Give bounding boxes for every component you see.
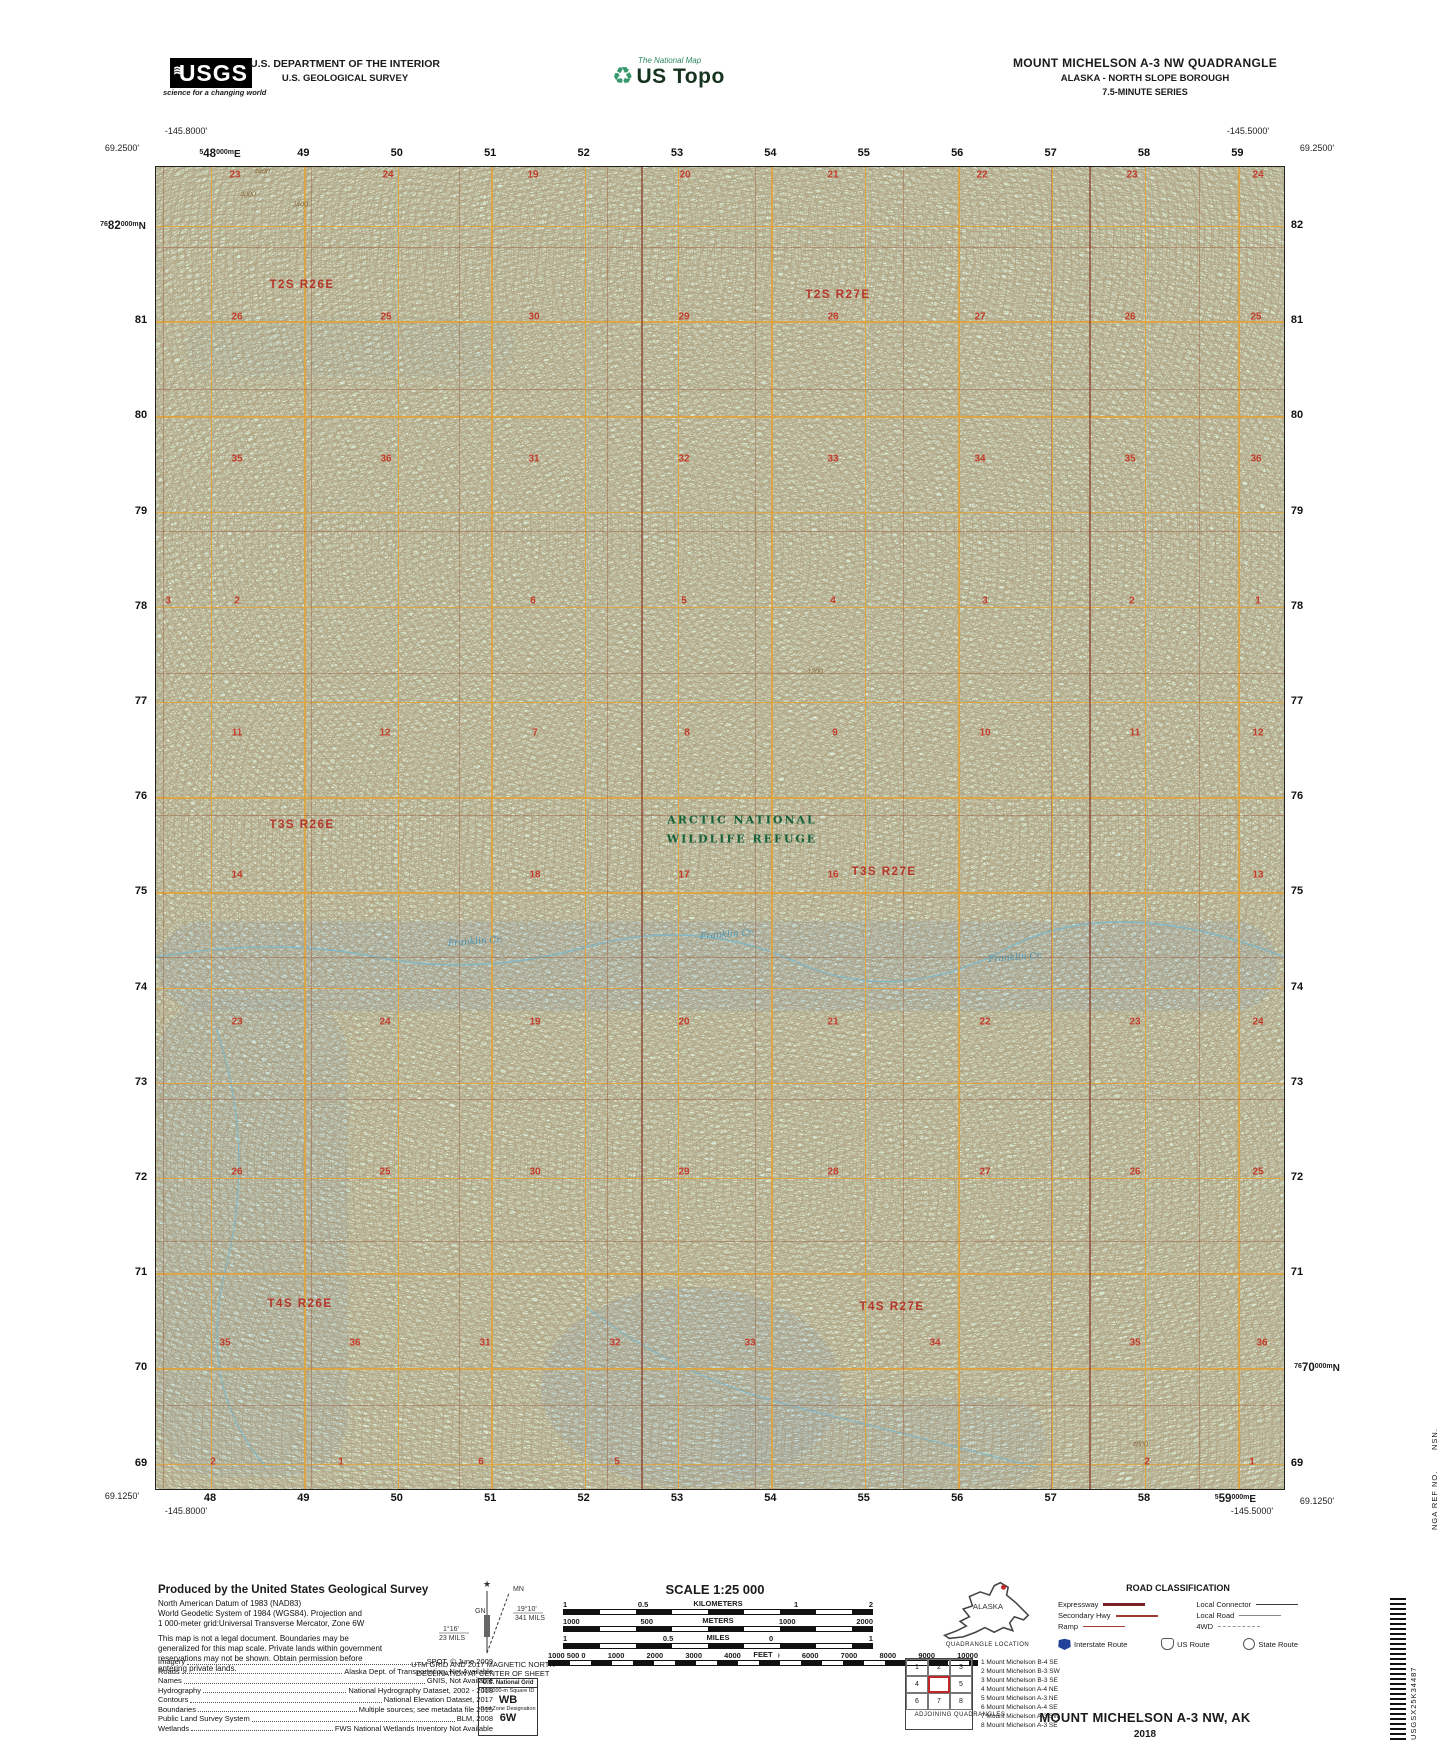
usng-title: U.S. National Grid xyxy=(479,1679,537,1688)
credit-label: Roads xyxy=(158,1667,180,1677)
utm-northing-line-75 xyxy=(156,892,1284,893)
road-line-sample xyxy=(1116,1615,1158,1617)
northing-right-76: 76 xyxy=(1291,790,1303,802)
utm-northing-line-78 xyxy=(156,607,1284,608)
utm-northing-line-79 xyxy=(156,512,1284,513)
barcode-code: USGSX25K34487 xyxy=(1409,1600,1418,1740)
topo-map-body xyxy=(155,166,1285,1490)
utm-easting-line-58 xyxy=(1145,167,1146,1489)
declination-caption: UTM GRID AND 2017 MAGNETIC NORTH DECLINA… xyxy=(408,1660,558,1678)
northing-left-72: 72 xyxy=(135,1171,147,1183)
credit-row-7: WetlandsFWS National Wetlands Inventory … xyxy=(158,1724,493,1734)
easting-bottom-48: 48 xyxy=(204,1492,216,1504)
scale-tick-label: 2 xyxy=(869,1600,873,1609)
northing-right-81: 81 xyxy=(1291,314,1303,326)
corner-bottom-left-lon: -145.8000' xyxy=(165,1506,207,1516)
scale-tick-label: 1 xyxy=(869,1634,873,1643)
credit-value: National Hydrography Dataset, 2002 - 201… xyxy=(348,1686,493,1696)
scale-bar-rule xyxy=(563,1609,873,1615)
adjoining-cell-0: 1 xyxy=(906,1659,928,1676)
credit-value: National Elevation Dataset, 2017 xyxy=(384,1695,493,1705)
department-heading: U.S. DEPARTMENT OF THE INTERIOR U.S. GEO… xyxy=(240,58,450,84)
road-row-r-1: Local Road xyxy=(1196,1610,1298,1621)
scale-tick-label: 0.5 xyxy=(638,1600,648,1609)
national-map-tagline: The National Map xyxy=(638,56,732,65)
shield-label: US Route xyxy=(1177,1640,1210,1649)
northing-label-first-part: 000m xyxy=(121,221,139,228)
corner-top-left-lon: -145.8000' xyxy=(165,126,207,136)
scale-tick-label: 7000 xyxy=(841,1651,858,1660)
credit-leader xyxy=(184,1676,425,1684)
easting-bottom-57: 57 xyxy=(1044,1492,1056,1504)
northing-label-70-part: N xyxy=(1333,1363,1340,1374)
svg-text:MN: MN xyxy=(513,1586,524,1593)
sheet-name: MOUNT MICHELSON A-3 NW, AK xyxy=(1000,1710,1290,1725)
northing-left-79: 79 xyxy=(135,505,147,517)
road-classification: ROAD CLASSIFICATION ExpresswaySecondary … xyxy=(1058,1583,1298,1650)
quadrangle-series: 7.5-MINUTE SERIES xyxy=(1000,87,1290,97)
utm-northing-line-76 xyxy=(156,797,1284,798)
road-label: Expressway xyxy=(1058,1600,1098,1609)
adjoining-cell-4 xyxy=(928,1676,950,1693)
scale-tick-label: 6000 xyxy=(802,1651,819,1660)
adjoining-quad-name-2: 3 Mount Michelson B-3 SE xyxy=(981,1676,1060,1685)
scale-tick-label: 1 xyxy=(794,1600,798,1609)
northing-left-81: 81 xyxy=(135,314,147,326)
utm-easting-line-48 xyxy=(211,167,212,1489)
utm-easting-line-55 xyxy=(865,167,866,1489)
quadrangle-location: ALASKA QUADRANGLE LOCATION xyxy=(925,1578,1050,1648)
easting-bottom-54: 54 xyxy=(764,1492,776,1504)
easting-bottom-50: 50 xyxy=(391,1492,403,1504)
usng-zone: 6W xyxy=(479,1712,537,1724)
credit-label: Imagery xyxy=(158,1657,185,1667)
northing-left-73: 73 xyxy=(135,1076,147,1088)
easting-top-50: 50 xyxy=(391,147,403,159)
credit-leader xyxy=(190,1695,381,1703)
utm-easting-line-50 xyxy=(398,167,399,1489)
northing-label-first-part: N xyxy=(139,221,146,232)
northing-right-79: 79 xyxy=(1291,505,1303,517)
credit-label: Public Land Survey System xyxy=(158,1714,250,1724)
utm-northing-line-69 xyxy=(156,1464,1284,1465)
northing-left-70: 70 xyxy=(135,1361,147,1373)
township-line-v0 xyxy=(641,167,643,1489)
adjoining-grid: 12345678 xyxy=(905,1658,973,1730)
route-shields: Interstate RouteUS RouteState Route xyxy=(1058,1638,1298,1650)
adjoining-quad-name-0: 1 Mount Michelson B-4 SE xyxy=(981,1658,1060,1667)
adjoining-cell-7: 7 xyxy=(928,1693,950,1710)
section-line-v3 xyxy=(607,167,608,1489)
road-label: 4WD xyxy=(1196,1622,1213,1631)
scale-bar-rule xyxy=(563,1643,873,1649)
scale-tick-label: 2000 xyxy=(647,1651,664,1660)
scale-tick-label: 1000 500 0 xyxy=(548,1651,586,1660)
section-line-v4 xyxy=(755,167,756,1489)
road-label: Secondary Hwy xyxy=(1058,1611,1111,1620)
credit-row-5: BoundariesMultiple sources; see metadata… xyxy=(158,1705,493,1715)
utm-northing-line-81 xyxy=(156,321,1284,322)
road-line-sample xyxy=(1239,1615,1281,1616)
northing-label-70-part: 000m xyxy=(1315,1363,1333,1370)
scale-unit-label: FEET xyxy=(747,1650,778,1659)
scale-tick-label: 2000 xyxy=(856,1617,873,1626)
us-shield-icon xyxy=(1161,1638,1174,1650)
adjoining-quad-name-3: 4 Mount Michelson A-4 NE xyxy=(981,1685,1060,1694)
northing-right-78: 78 xyxy=(1291,600,1303,612)
northing-label-first-part: 82 xyxy=(108,220,121,232)
easting-top-49: 49 xyxy=(297,147,309,159)
northing-right-73: 73 xyxy=(1291,1076,1303,1088)
easting-top-56: 56 xyxy=(951,147,963,159)
quadrangle-title-block: MOUNT MICHELSON A-3 NW QUADRANGLE ALASKA… xyxy=(1000,56,1290,97)
easting-label-last-part: 59 xyxy=(1219,1493,1232,1505)
road-row-r-0: Local Connector xyxy=(1196,1599,1298,1610)
utm-easting-line-51 xyxy=(491,167,492,1489)
credit-label: Names xyxy=(158,1676,182,1686)
barcode xyxy=(1390,1598,1406,1740)
scale-bar-meters: 1000500010002000METERS xyxy=(563,1617,873,1632)
northing-right-72: 72 xyxy=(1291,1171,1303,1183)
svg-text:341 MILS: 341 MILS xyxy=(515,1615,545,1622)
quadloc-caption: QUADRANGLE LOCATION xyxy=(925,1642,1050,1648)
scale-tick-label: 3000 xyxy=(685,1651,702,1660)
scale-unit-label: MILES xyxy=(701,1633,736,1642)
section-line-h0 xyxy=(156,247,1284,248)
utm-northing-line-74 xyxy=(156,988,1284,989)
section-line-v2 xyxy=(459,167,460,1489)
credit-value: Multiple sources; see metadata file 2015 xyxy=(359,1705,493,1715)
northing-label-70: 7670000mN xyxy=(1294,1358,1340,1376)
scale-tick-label: 1 xyxy=(563,1634,567,1643)
corner-top-right-lon: -145.5000' xyxy=(1227,126,1269,136)
declination-caption-line1: UTM GRID AND 2017 MAGNETIC NORTH xyxy=(408,1660,558,1669)
northing-right-75: 75 xyxy=(1291,885,1303,897)
usng-square-id: WB xyxy=(479,1694,537,1706)
easting-bottom-56: 56 xyxy=(951,1492,963,1504)
shield-item-2: State Route xyxy=(1243,1638,1298,1650)
easting-bottom-58: 58 xyxy=(1138,1492,1150,1504)
adjoining-cell-8: 8 xyxy=(950,1693,972,1710)
shield-label: State Route xyxy=(1258,1640,1298,1649)
easting-top-51: 51 xyxy=(484,147,496,159)
adjoining-cell-2: 3 xyxy=(950,1659,972,1676)
svg-text:1°16': 1°16' xyxy=(443,1625,459,1633)
northing-right-74: 74 xyxy=(1291,981,1303,993)
section-line-v6 xyxy=(1051,167,1052,1489)
declination-diagram: ★ MN GN 19°10' 341 MILS 1°16' 23 MILS xyxy=(425,1575,555,1665)
utm-easting-line-52 xyxy=(585,167,586,1489)
road-label: Ramp xyxy=(1058,1622,1078,1631)
declination-caption-line2: DECLINATION AT CENTER OF SHEET xyxy=(408,1669,558,1678)
easting-label-first: 548000mE xyxy=(199,144,240,162)
credit-leader xyxy=(187,1657,425,1665)
usng-box: U.S. National Grid 100,000-m Square ID W… xyxy=(478,1678,538,1736)
scale-tick-label: 8000 xyxy=(879,1651,896,1660)
shield-item-0: Interstate Route xyxy=(1058,1638,1127,1650)
scale-tick-label: 4000 xyxy=(724,1651,741,1660)
utm-easting-line-49 xyxy=(304,167,305,1489)
adjoining-quad-name-4: 5 Mount Michelson A-3 NE xyxy=(981,1694,1060,1703)
section-line-v7 xyxy=(1199,167,1200,1489)
easting-label-first-part: E xyxy=(234,149,241,160)
easting-label-last: 559000mE xyxy=(1215,1489,1256,1507)
credit-leader xyxy=(182,1667,343,1675)
northing-right-82: 82 xyxy=(1291,219,1303,231)
utm-northing-line-77 xyxy=(156,702,1284,703)
scale-tick-label: 1000 xyxy=(608,1651,625,1660)
svg-text:★: ★ xyxy=(483,1579,491,1589)
scale-bar-rule xyxy=(563,1626,873,1632)
sheet-title-block: MOUNT MICHELSON A-3 NW, AK 2018 xyxy=(1000,1710,1290,1740)
northing-right-69: 69 xyxy=(1291,1457,1303,1469)
corner-top-right-lat: 69.2500' xyxy=(1300,143,1334,153)
road-line-sample xyxy=(1103,1603,1145,1606)
scale-unit-label: METERS xyxy=(696,1616,739,1625)
svg-text:ALASKA: ALASKA xyxy=(972,1602,1003,1611)
easting-top-52: 52 xyxy=(577,147,589,159)
ustopo-logo: The National Map ♻ US Topo xyxy=(612,56,732,89)
scale-title: SCALE 1:25 000 xyxy=(545,1582,885,1597)
scale-tick-label: 500 xyxy=(641,1617,654,1626)
easting-bottom-53: 53 xyxy=(671,1492,683,1504)
easting-top-59: 59 xyxy=(1231,147,1243,159)
road-rows-left: ExpresswaySecondary HwyRamp xyxy=(1058,1599,1158,1632)
road-rows-right: Local ConnectorLocal Road4WD xyxy=(1196,1599,1298,1632)
interstate-shield-icon xyxy=(1058,1638,1071,1650)
credit-row-3: HydrographyNational Hydrography Dataset,… xyxy=(158,1686,493,1696)
northing-left-75: 75 xyxy=(135,885,147,897)
scale-bar-miles: 10.501MILES xyxy=(563,1634,873,1649)
road-classification-title: ROAD CLASSIFICATION xyxy=(1058,1583,1298,1593)
northing-left-77: 77 xyxy=(135,695,147,707)
adjoining-cell-3: 4 xyxy=(906,1676,928,1693)
section-line-h1 xyxy=(156,389,1284,390)
credit-value: FWS National Wetlands Inventory Not Avai… xyxy=(335,1724,493,1734)
road-row-l-1: Secondary Hwy xyxy=(1058,1610,1158,1621)
section-line-h3 xyxy=(156,673,1284,674)
adjoining-cell-1: 2 xyxy=(928,1659,950,1676)
svg-text:23 MILS: 23 MILS xyxy=(439,1635,465,1642)
utm-northing-line-71 xyxy=(156,1273,1284,1274)
corner-bottom-right-lat: 69.1250' xyxy=(1300,1496,1334,1506)
usgs-waves-icon: ≋ xyxy=(173,62,183,79)
state-shield-icon xyxy=(1243,1638,1255,1650)
road-row-l-2: Ramp xyxy=(1058,1621,1158,1632)
easting-label-first-part: 000m xyxy=(216,149,234,156)
section-line-h4 xyxy=(156,815,1284,816)
credit-row-6: Public Land Survey SystemBLM, 2008 xyxy=(158,1714,493,1724)
utm-northing-line-82 xyxy=(156,226,1284,227)
easting-bottom-55: 55 xyxy=(858,1492,870,1504)
easting-bottom-49: 49 xyxy=(297,1492,309,1504)
national-map-icon: ♻ xyxy=(612,65,634,89)
northing-label-first-part: 76 xyxy=(100,221,108,228)
svg-text:GN: GN xyxy=(475,1608,486,1615)
adjoining-cell-5: 5 xyxy=(950,1676,972,1693)
easting-top-55: 55 xyxy=(858,147,870,159)
northing-right-80: 80 xyxy=(1291,409,1303,421)
section-line-v5 xyxy=(903,167,904,1489)
road-label: Local Connector xyxy=(1196,1600,1251,1609)
credit-row-4: ContoursNational Elevation Dataset, 2017 xyxy=(158,1695,493,1705)
scale-tick-label: 0.5 xyxy=(663,1634,673,1643)
easting-top-58: 58 xyxy=(1138,147,1150,159)
section-line-h5 xyxy=(156,957,1284,958)
quadrangle-state: ALASKA - NORTH SLOPE BOROUGH xyxy=(1000,73,1290,84)
scale-tick-label: 1 xyxy=(563,1600,567,1609)
utm-northing-line-80 xyxy=(156,416,1284,417)
easting-bottom-51: 51 xyxy=(484,1492,496,1504)
svg-text:19°10': 19°10' xyxy=(517,1605,537,1613)
corner-bottom-left-lat: 69.1250' xyxy=(105,1491,139,1501)
northing-label-first: 7682000mN xyxy=(100,216,146,234)
easting-label-first-part: 48 xyxy=(203,148,216,160)
road-row-l-0: Expressway xyxy=(1058,1599,1158,1610)
northing-label-70-part: 76 xyxy=(1294,1363,1302,1370)
northing-right-77: 77 xyxy=(1291,695,1303,707)
northing-right-71: 71 xyxy=(1291,1266,1303,1278)
easting-label-first-part: 5 xyxy=(199,149,203,156)
utm-northing-line-72 xyxy=(156,1178,1284,1179)
easting-bottom-52: 52 xyxy=(577,1492,589,1504)
easting-top-54: 54 xyxy=(764,147,776,159)
quadrangle-name: MOUNT MICHELSON A-3 NW QUADRANGLE xyxy=(1000,56,1290,70)
section-line-h8 xyxy=(156,1405,1284,1406)
northing-label-70-part: 70 xyxy=(1302,1362,1315,1374)
easting-top-57: 57 xyxy=(1044,147,1056,159)
easting-label-last-part: E xyxy=(1249,1494,1256,1505)
section-line-h2 xyxy=(156,531,1284,532)
scale-tick-label: 1000 xyxy=(563,1617,580,1626)
section-line-v0 xyxy=(163,167,164,1489)
nga-ref-label: NGA REF NO. xyxy=(1430,1440,1439,1530)
credit-label: Wetlands xyxy=(158,1724,189,1734)
northing-left-76: 76 xyxy=(135,790,147,802)
scale-bar-kilometers: 10.5012KILOMETERS xyxy=(563,1600,873,1615)
scale-tick-label: 1000 xyxy=(779,1617,796,1626)
shield-label: Interstate Route xyxy=(1074,1640,1127,1649)
utm-northing-line-73 xyxy=(156,1083,1284,1084)
utm-northing-line-70 xyxy=(156,1368,1284,1369)
easting-top-53: 53 xyxy=(671,147,683,159)
easting-label-last-part: 000m xyxy=(1231,1494,1249,1501)
road-line-sample xyxy=(1083,1626,1125,1627)
utm-easting-line-59 xyxy=(1238,167,1239,1489)
section-line-h7 xyxy=(156,1241,1284,1242)
road-line-sample xyxy=(1256,1604,1298,1605)
adjoining-quad-name-1: 2 Mount Michelson B-3 SW xyxy=(981,1667,1060,1676)
sheet-year: 2018 xyxy=(1000,1729,1290,1740)
easting-label-last-part: 5 xyxy=(1215,1494,1219,1501)
credit-leader xyxy=(252,1714,455,1722)
section-line-h6 xyxy=(156,1099,1284,1100)
northing-left-78: 78 xyxy=(135,600,147,612)
adjoining-cell-6: 6 xyxy=(906,1693,928,1710)
road-row-r-2: 4WD xyxy=(1196,1621,1298,1632)
northing-left-74: 74 xyxy=(135,981,147,993)
utm-easting-line-56 xyxy=(958,167,959,1489)
scale-unit-label: KILOMETERS xyxy=(687,1599,748,1608)
grid-lines-layer xyxy=(156,167,1284,1489)
corner-top-left-lat: 69.2500' xyxy=(105,143,139,153)
dept-line1: U.S. DEPARTMENT OF THE INTERIOR xyxy=(240,58,450,70)
northing-left-71: 71 xyxy=(135,1266,147,1278)
section-line-v1 xyxy=(311,167,312,1489)
northing-left-69: 69 xyxy=(135,1457,147,1469)
dept-line2: U.S. GEOLOGICAL SURVEY xyxy=(240,73,450,84)
usgs-logo-text: USGS xyxy=(179,60,248,87)
ustopo-title: US Topo xyxy=(637,65,725,89)
scale-tick-label: 0 xyxy=(769,1634,773,1643)
shield-item-1: US Route xyxy=(1161,1638,1210,1650)
road-line-sample xyxy=(1218,1626,1260,1627)
utm-easting-line-54 xyxy=(771,167,772,1489)
road-label: Local Road xyxy=(1196,1611,1234,1620)
corner-bottom-right-lon: -145.5000' xyxy=(1231,1506,1273,1516)
credit-label: Boundaries xyxy=(158,1705,196,1715)
northing-left-80: 80 xyxy=(135,409,147,421)
township-line-v1 xyxy=(1089,167,1091,1489)
usgs-tagline: science for a changing world xyxy=(163,88,266,97)
us-topo-map-sheet: ≋ USGS science for a changing world U.S.… xyxy=(0,0,1445,1746)
credit-leader xyxy=(191,1724,333,1732)
credit-leader xyxy=(203,1686,346,1694)
credit-label: Hydrography xyxy=(158,1686,201,1696)
credit-leader xyxy=(198,1705,357,1713)
utm-easting-line-53 xyxy=(678,167,679,1489)
credit-label: Contours xyxy=(158,1695,188,1705)
